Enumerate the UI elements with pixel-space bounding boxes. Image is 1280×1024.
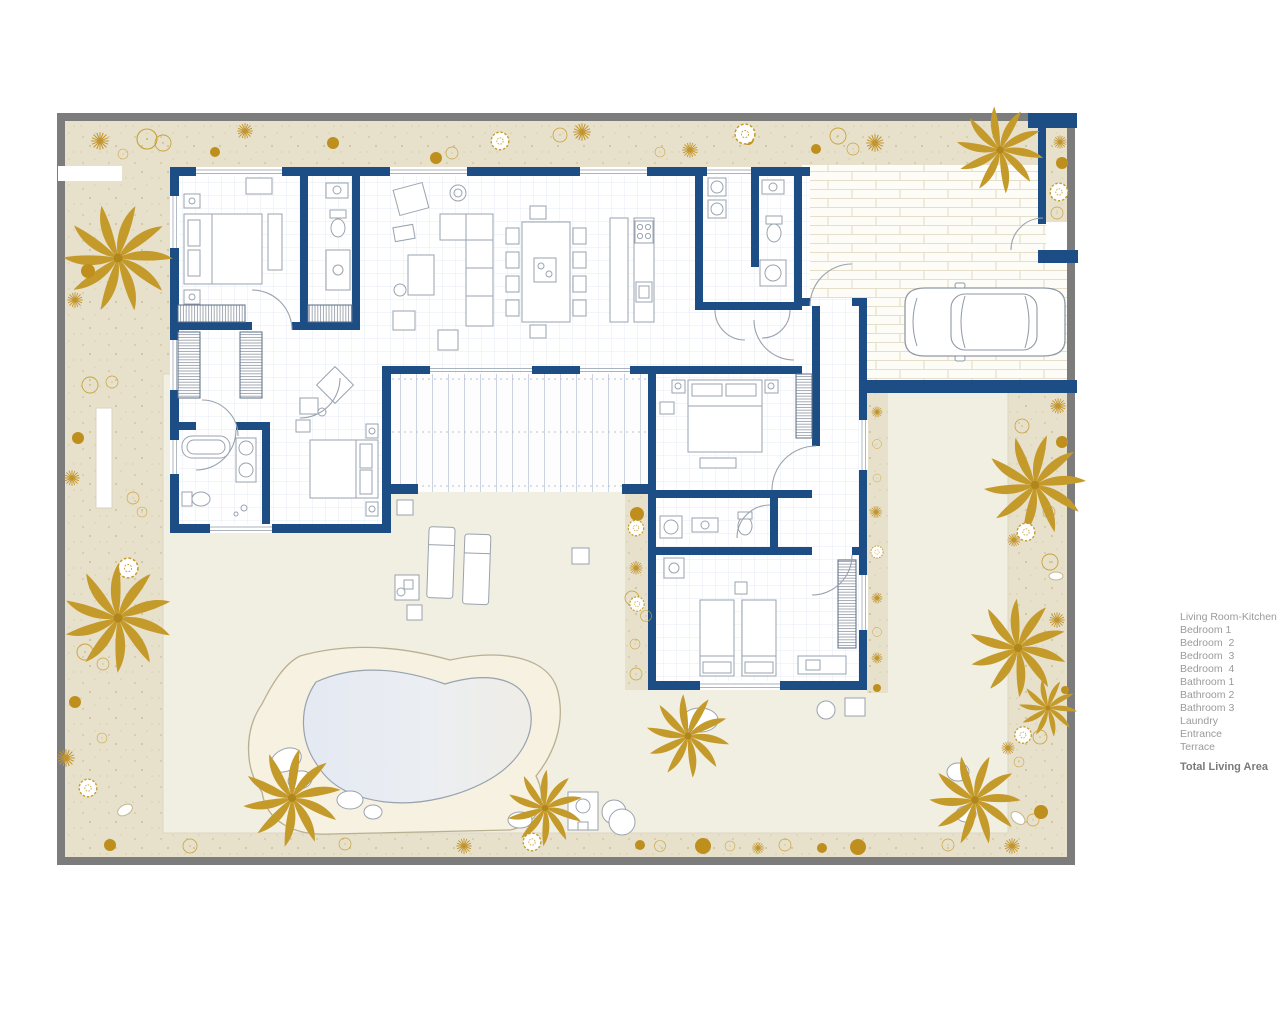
legend-item: Bathroom 3 bbox=[1180, 702, 1277, 715]
legend-label: Bathroom 1 bbox=[1180, 676, 1234, 688]
legend-item: Living Room-Kitchen bbox=[1180, 611, 1277, 624]
legend-label: Bedroom 4 bbox=[1180, 663, 1234, 675]
shower bbox=[760, 260, 786, 286]
legend-label: Bedroom 1 bbox=[1180, 624, 1231, 636]
kitchen-sink bbox=[636, 282, 652, 302]
kitchen-island bbox=[610, 218, 628, 322]
car-icon bbox=[905, 283, 1065, 361]
side-gate bbox=[58, 166, 122, 181]
legend-label: Bathroom 2 bbox=[1180, 689, 1234, 701]
legend-item: Bedroom 1 bbox=[1180, 624, 1277, 637]
legend-item: Laundry bbox=[1180, 715, 1277, 728]
legend-label: Terrace bbox=[1180, 741, 1215, 753]
legend-label: Bathroom 3 bbox=[1180, 702, 1234, 714]
shrub-icon bbox=[491, 132, 509, 150]
legend-item: Bedroom 2 bbox=[1180, 637, 1277, 650]
legend-item: Terrace bbox=[1180, 741, 1277, 754]
legend-total: Total Living Area bbox=[1180, 761, 1277, 774]
legend-label: Bedroom 3 bbox=[1180, 650, 1234, 662]
legend-label: Bedroom 2 bbox=[1180, 637, 1234, 649]
shower bbox=[660, 516, 682, 538]
starburst-plant-icon bbox=[91, 132, 109, 150]
legend-item: Entrance bbox=[1180, 728, 1277, 741]
legend: Living Room-Kitchen Bedroom 1 Bedroom 2 … bbox=[1180, 611, 1277, 774]
legend-item: Bathroom 1 bbox=[1180, 676, 1277, 689]
terrace-deck bbox=[390, 374, 650, 492]
legend-label: Laundry bbox=[1180, 715, 1218, 727]
floor-plan-page: Living Room-Kitchen Bedroom 1 Bedroom 2 … bbox=[0, 0, 1280, 1024]
legend-total-label: Total Living Area bbox=[1180, 761, 1268, 773]
kitchen-counter bbox=[634, 218, 654, 322]
floor-plan-drawing bbox=[0, 0, 1280, 1024]
legend-label: Entrance bbox=[1180, 728, 1222, 740]
legend-item: Bedroom 3 bbox=[1180, 650, 1277, 663]
legend-label: Living Room-Kitchen bbox=[1180, 611, 1277, 623]
garden-planter bbox=[96, 408, 112, 508]
terrace-pier bbox=[390, 484, 418, 494]
desk bbox=[798, 656, 846, 674]
terrace-pier bbox=[622, 484, 650, 494]
bathtub bbox=[182, 436, 230, 458]
legend-item: Bedroom 4 bbox=[1180, 663, 1277, 676]
legend-item: Bathroom 2 bbox=[1180, 689, 1277, 702]
